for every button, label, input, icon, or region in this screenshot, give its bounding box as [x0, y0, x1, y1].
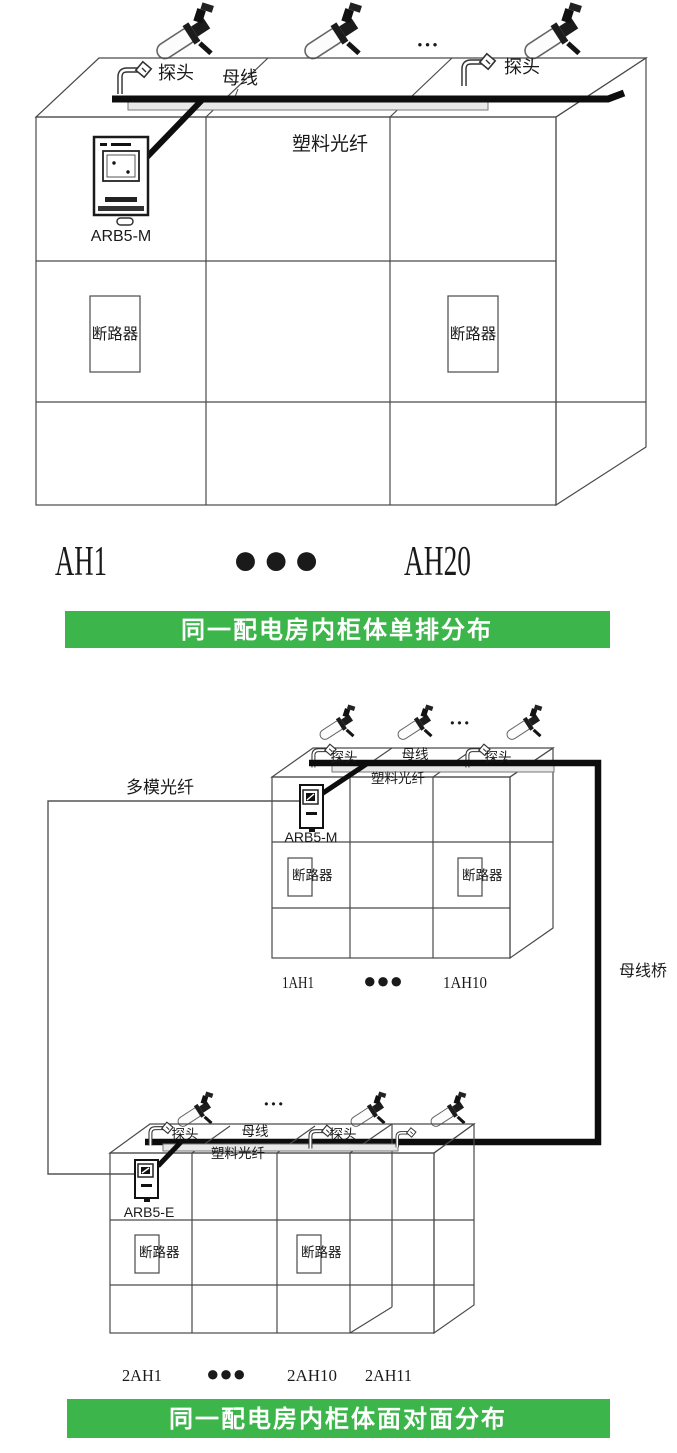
- figure-page: •••: [0, 0, 677, 1448]
- cabinet-last-label: 1AH10: [443, 973, 487, 992]
- cabinet-outline: [36, 58, 646, 505]
- cabinet-last-label: AH20: [404, 539, 471, 585]
- probe-label: 探头: [330, 1127, 357, 1142]
- caption-text: 同一配电房内柜体面对面分布: [169, 1405, 507, 1433]
- busbar-bridge-line: [145, 763, 598, 1142]
- probe-label: 探头: [158, 63, 194, 83]
- arc-sensor-icon: [317, 705, 355, 743]
- arc-sensor-icon: [520, 2, 582, 64]
- plastic-fiber-label: 塑料光纤: [292, 133, 368, 155]
- diagram-single-row: •••: [36, 2, 646, 648]
- arc-sensor-icon: [504, 705, 542, 743]
- busbar-label: 母线: [402, 747, 429, 762]
- probe-elbow-icon: [120, 62, 151, 94]
- arc-sensor-icon: [152, 2, 214, 64]
- cabinet-first-label: 1AH1: [282, 973, 314, 992]
- row-dots: ●●●: [232, 535, 324, 584]
- probe-label: 探头: [504, 57, 540, 77]
- busbar-bar: [163, 1144, 398, 1151]
- arc-sensor-icon: [395, 705, 433, 743]
- breaker-label: 断路器: [139, 1245, 180, 1260]
- ellipsis-dots: •••: [450, 716, 472, 730]
- row-dots: ●●●: [206, 1361, 246, 1386]
- cabinet-mid-label: 2AH10: [287, 1366, 337, 1385]
- multimode-fiber-label: 多模光纤: [126, 778, 194, 797]
- breaker-label: 断路器: [301, 1245, 342, 1260]
- busbar-label: 母线: [222, 68, 258, 88]
- breaker-label: 断路器: [292, 868, 333, 883]
- ellipsis-dots: •••: [418, 37, 441, 52]
- cabinet-last-label: 2AH11: [365, 1366, 412, 1385]
- breaker-label: 断路器: [462, 868, 503, 883]
- arb5-e-device-icon: [135, 1160, 158, 1202]
- diagram-canvas: •••: [0, 0, 677, 1448]
- cabinet-outline: [110, 1124, 474, 1333]
- device-label: ARB5-E: [124, 1204, 175, 1220]
- plastic-fiber-label: 塑料光纤: [371, 771, 425, 786]
- busbar-label: 母线: [242, 1124, 269, 1139]
- row-dots: ●●●: [363, 968, 403, 993]
- arc-sensor-icon: [300, 2, 362, 64]
- probe-label: 探头: [172, 1127, 199, 1142]
- breaker-label: 断路器: [450, 325, 497, 343]
- breaker-label: 断路器: [92, 325, 139, 343]
- device-label: ARB5-M: [91, 228, 151, 245]
- arb5-m-device-icon: [94, 137, 148, 225]
- multimode-fiber-line: [48, 801, 300, 1174]
- probe-label: 探头: [331, 750, 358, 765]
- cabinet-first-label: AH1: [55, 539, 107, 585]
- busbar-bridge-label: 母线桥: [619, 962, 667, 980]
- caption-text: 同一配电房内柜体单排分布: [181, 616, 493, 644]
- plastic-fiber-line: [112, 93, 624, 99]
- plastic-fiber-label: 塑料光纤: [211, 1146, 265, 1161]
- cabinet-first-label: 2AH1: [122, 1366, 162, 1385]
- diagram-face-to-face: 多模光纤 ••• 探头: [48, 705, 667, 1438]
- busbar-bar: [128, 102, 488, 110]
- arb5-m-device-icon: [300, 785, 323, 832]
- probe-label: 探头: [485, 750, 512, 765]
- device-label: ARB5-M: [285, 829, 338, 845]
- ellipsis-dots: •••: [264, 1097, 286, 1111]
